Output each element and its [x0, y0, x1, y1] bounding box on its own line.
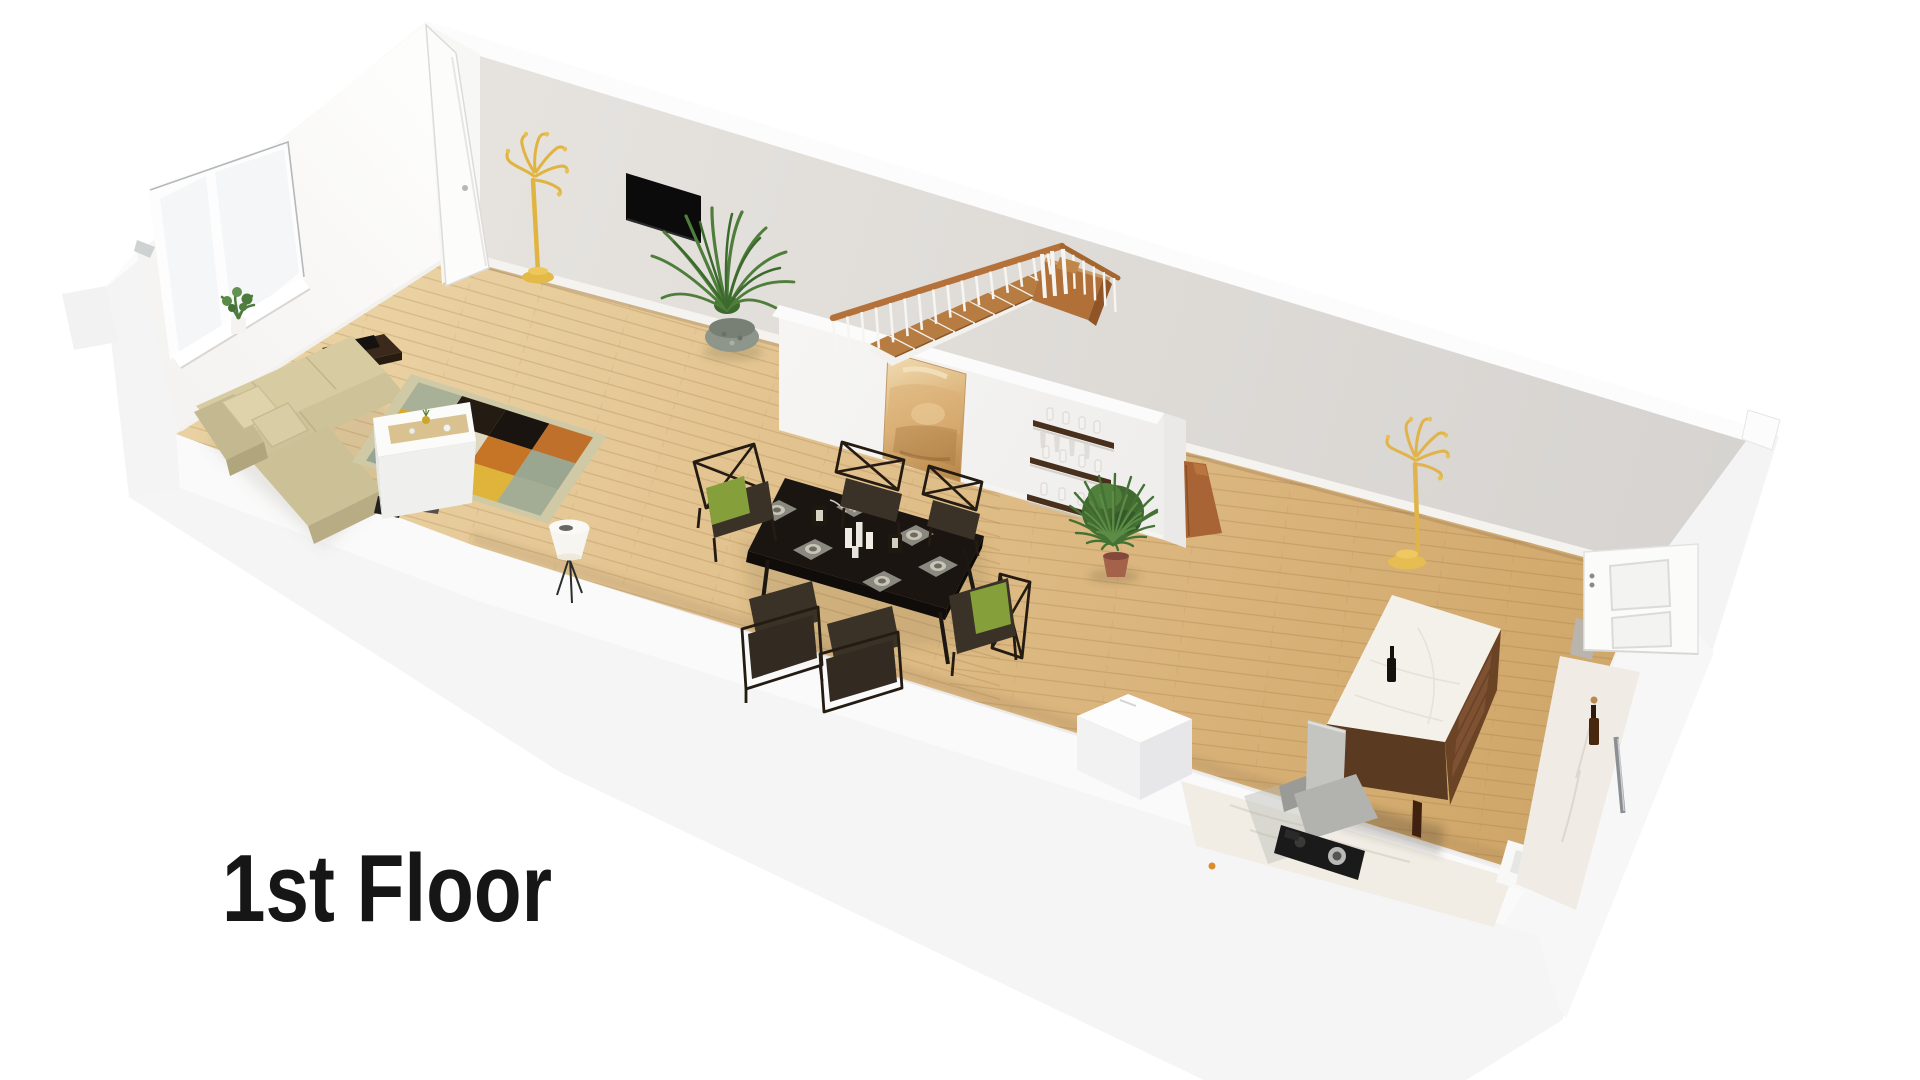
svg-text:1st Floor: 1st Floor: [222, 835, 552, 942]
